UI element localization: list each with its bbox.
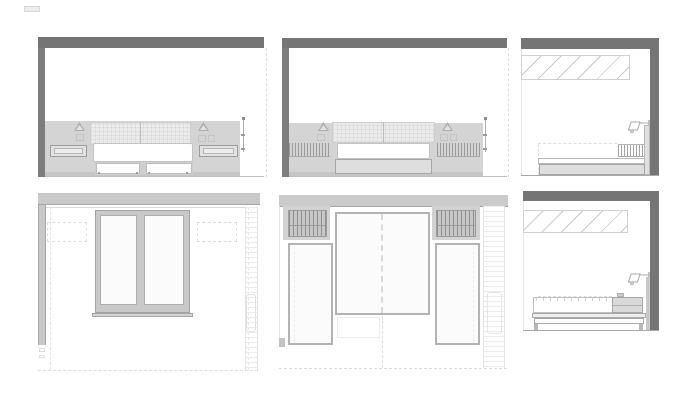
window-sill	[92, 313, 193, 317]
hatched-strip	[483, 206, 505, 368]
bed-frame-rail	[534, 318, 644, 324]
clerestory-glazing	[521, 55, 630, 80]
guide-box-faint	[337, 317, 380, 338]
dashed-floor-line	[38, 370, 258, 371]
under-bed-drawer	[96, 163, 140, 174]
floor-line	[45, 176, 264, 177]
book-row	[437, 143, 480, 157]
door-guide-dashed	[294, 246, 295, 342]
wall-lamp-icon	[626, 119, 650, 135]
bed-duvet	[337, 143, 430, 159]
ceiling-slab	[521, 38, 659, 49]
ceiling-slab	[523, 191, 659, 201]
drawer-foot	[186, 172, 188, 174]
door-handle-outline	[487, 292, 502, 334]
drawer-foot	[136, 172, 138, 174]
wall-base-block	[279, 338, 285, 347]
switch-plate	[208, 135, 215, 142]
wall-section-cut	[650, 49, 659, 175]
drawer-foot	[148, 172, 150, 174]
switch-plate	[317, 134, 325, 141]
window-pane-right	[144, 215, 184, 305]
dimension-marker	[242, 117, 245, 120]
wall-section-cut	[38, 48, 45, 177]
dimension-marker	[483, 134, 487, 136]
nightstand-left	[50, 145, 87, 157]
book-row	[289, 143, 330, 157]
door-guide-dashed	[473, 246, 474, 342]
wall-column	[38, 205, 46, 345]
ceiling-slab	[38, 37, 264, 48]
section-cut-line	[508, 48, 509, 177]
ceiling-slab	[282, 38, 507, 48]
dashed-guide-line	[50, 207, 51, 370]
legend-mini-rect	[24, 6, 40, 12]
dashed-guide-box	[47, 222, 87, 242]
headboard-split-line	[383, 122, 384, 143]
bed-base	[335, 159, 432, 174]
switch-plate	[440, 134, 448, 141]
section-cut-line	[266, 48, 267, 177]
hatched-strip	[245, 207, 258, 370]
book-row	[618, 144, 644, 157]
bed-duvet	[93, 143, 193, 162]
floor-line	[521, 175, 659, 176]
nightstand-right	[199, 145, 238, 157]
window-pane-left	[100, 215, 137, 305]
clerestory-glazing	[523, 210, 628, 233]
beam-band	[38, 193, 260, 205]
floor-line	[289, 176, 507, 177]
room-edge-line	[279, 206, 280, 345]
dashed-centerline	[382, 316, 383, 368]
bed-guide-dashed	[538, 143, 617, 144]
dimension-marker	[241, 148, 245, 150]
dimension-marker	[484, 117, 487, 120]
dashed-guide-box	[197, 222, 237, 242]
mattress	[533, 297, 613, 313]
switch-plate	[198, 135, 206, 142]
floor-line	[523, 330, 659, 331]
headboard-split-line	[140, 122, 141, 145]
mattress-stitching	[536, 298, 610, 301]
drawer-foot	[98, 172, 100, 174]
dashed-floor-line	[279, 368, 507, 369]
bed-platform	[539, 164, 645, 175]
column-base-mark	[39, 348, 45, 352]
dashed-centerline	[381, 214, 383, 313]
louver-panel	[288, 210, 327, 237]
wall-section-cut	[650, 201, 659, 330]
door-handle-outline	[246, 294, 256, 332]
switch-plate	[76, 134, 84, 141]
drawing-sheet	[0, 0, 700, 409]
guide-line	[45, 207, 257, 208]
dimension-marker	[483, 148, 487, 150]
wall-section-cut	[282, 48, 289, 177]
switch-plate	[450, 134, 457, 141]
nightstand-shelf	[612, 297, 643, 313]
column-base-mark	[39, 355, 45, 358]
dimension-marker	[241, 134, 245, 136]
louver-panel	[436, 210, 476, 237]
